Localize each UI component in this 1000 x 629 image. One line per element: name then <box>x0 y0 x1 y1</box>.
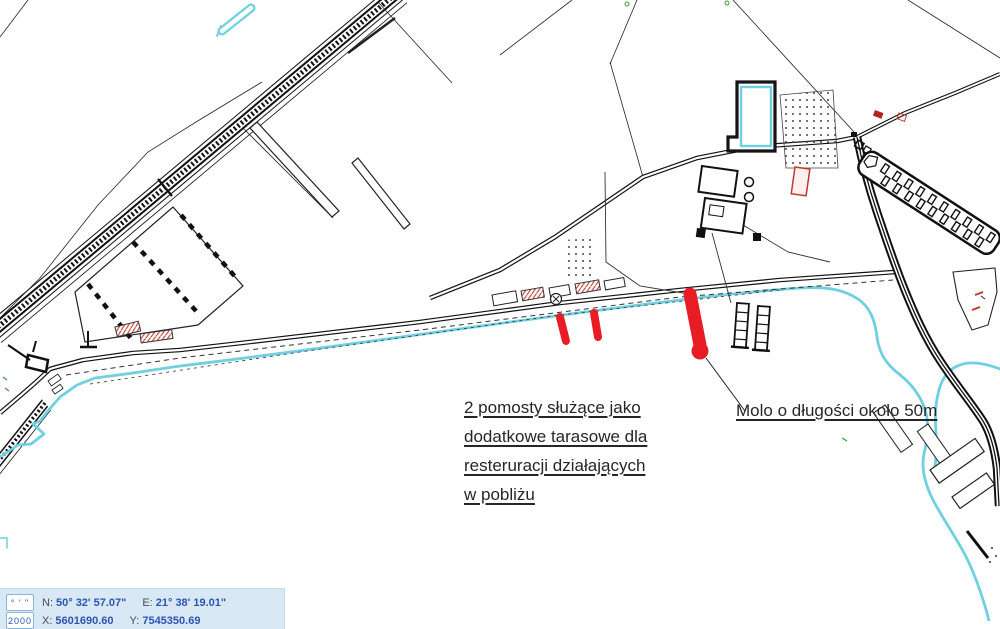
red-marker-molo-end <box>692 343 709 360</box>
east-value: 21° 38' 19.01" <box>156 597 226 609</box>
existing-piers <box>731 303 773 351</box>
annotation-line: resteruracji działających <box>464 451 645 480</box>
waterfront-buildings <box>492 278 625 306</box>
north-value: 50° 32' 57.07" <box>56 597 126 609</box>
annotation-line: 2 pomosty służące jako <box>464 393 641 422</box>
railway <box>0 0 407 479</box>
east-label: E: <box>142 597 152 609</box>
red-marker-molo <box>690 294 700 345</box>
annotation-molo: Molo o długości około 50m <box>736 396 937 425</box>
coord-format-button[interactable]: ° ' " <box>6 594 34 611</box>
red-marker-pier-1 <box>560 317 566 341</box>
retention-pond <box>728 82 775 151</box>
annotation-line: w pobliżu <box>464 480 535 509</box>
geographic-coords-row: ° ' " N: 50° 32' 57.07" E: 21° 38' 19.01… <box>6 594 226 611</box>
pond-capsule-fill <box>222 8 251 31</box>
coordinate-statusbar: ° ' " N: 50° 32' 57.07" E: 21° 38' 19.01… <box>0 588 285 629</box>
annotation-line: Molo o długości około 50m <box>736 396 937 425</box>
annotation-line: dodatkowe tarasowe dla <box>464 422 647 451</box>
map-viewer: { "map": { "annotations": { "pomosty_lin… <box>0 0 1000 621</box>
left-junction-details <box>3 331 97 394</box>
map-specks <box>625 1 907 441</box>
red-marker-pier-2 <box>594 313 598 337</box>
allotment-parcel <box>75 207 243 343</box>
north-label: N: <box>42 597 53 609</box>
map-canvas[interactable] <box>0 0 1000 621</box>
top-right-road <box>857 74 1000 137</box>
farm-buildings <box>563 90 878 303</box>
annotation-pomosty: 2 pomosty służące jako dodatkowe tarasow… <box>464 393 647 509</box>
